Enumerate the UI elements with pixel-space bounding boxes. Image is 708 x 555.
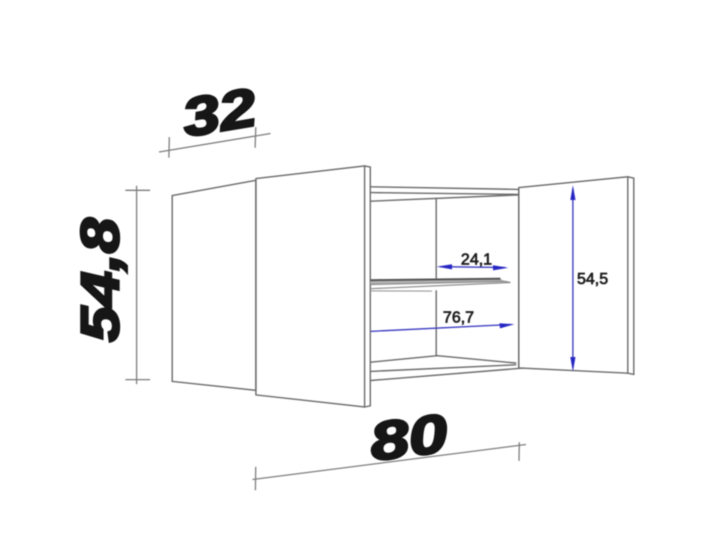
svg-text:54,5: 54,5 — [577, 271, 608, 288]
svg-text:24,1: 24,1 — [461, 252, 492, 269]
svg-text:54,8: 54,8 — [70, 218, 130, 342]
svg-text:80: 80 — [367, 404, 451, 473]
svg-text:32: 32 — [178, 76, 261, 148]
svg-text:76,7: 76,7 — [443, 310, 474, 327]
